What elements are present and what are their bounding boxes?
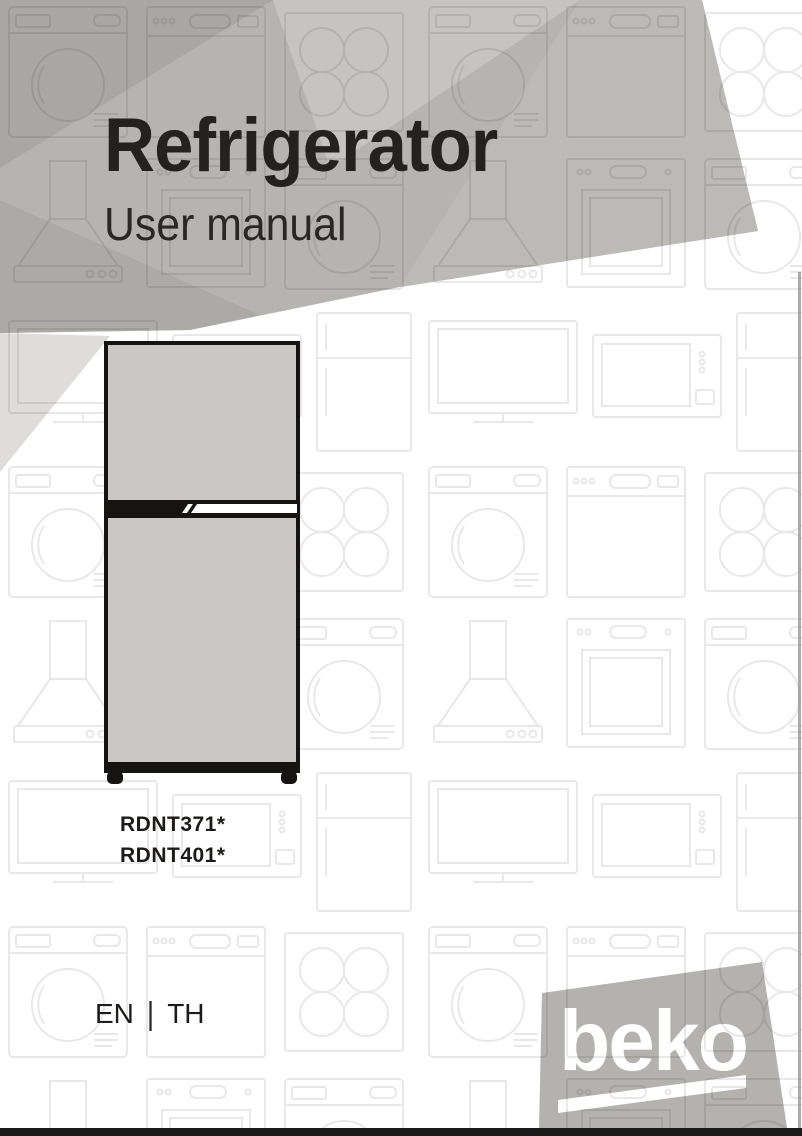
language-indicator: EN | TH: [95, 999, 205, 1030]
language-separator: |: [147, 997, 154, 1032]
page-edge-line: [798, 272, 801, 1128]
page-title-text: Refrigerator: [104, 108, 497, 184]
manual-cover-page: beko: [0, 0, 802, 1136]
fridge-foot-left: [107, 771, 123, 784]
page-subtitle: User manual: [104, 201, 365, 247]
fridge-cabinet: [106, 343, 298, 771]
beko-wordmark: beko: [559, 994, 747, 1089]
refrigerator-illustration: [104, 341, 300, 785]
model-number: RDNT371*: [120, 809, 226, 840]
language-th: TH: [167, 999, 204, 1030]
bottom-black-bar: [0, 1128, 802, 1136]
fridge-handle-recess: [191, 504, 297, 513]
model-list: RDNT371* RDNT401*: [120, 809, 226, 871]
beko-logo: beko: [530, 960, 792, 1132]
page-title: Refrigerator: [104, 108, 527, 184]
fridge-bottom-trim: [104, 762, 300, 773]
language-en: EN: [95, 999, 134, 1030]
fridge-foot-right: [281, 771, 297, 784]
page-subtitle-text: User manual: [104, 201, 347, 247]
model-number: RDNT401*: [120, 840, 226, 871]
